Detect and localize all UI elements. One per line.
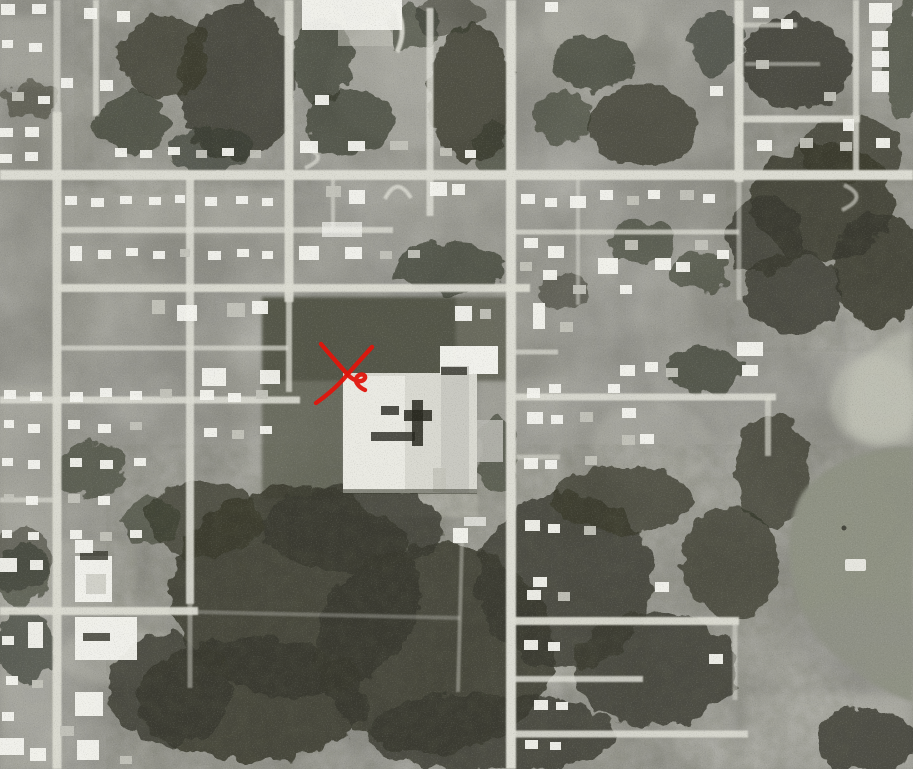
film-grain-light [0,0,913,769]
film-grain-light-shape [0,0,913,769]
aerial-photograph [0,0,913,769]
aerial-photo-viewport[interactable] [0,0,913,769]
